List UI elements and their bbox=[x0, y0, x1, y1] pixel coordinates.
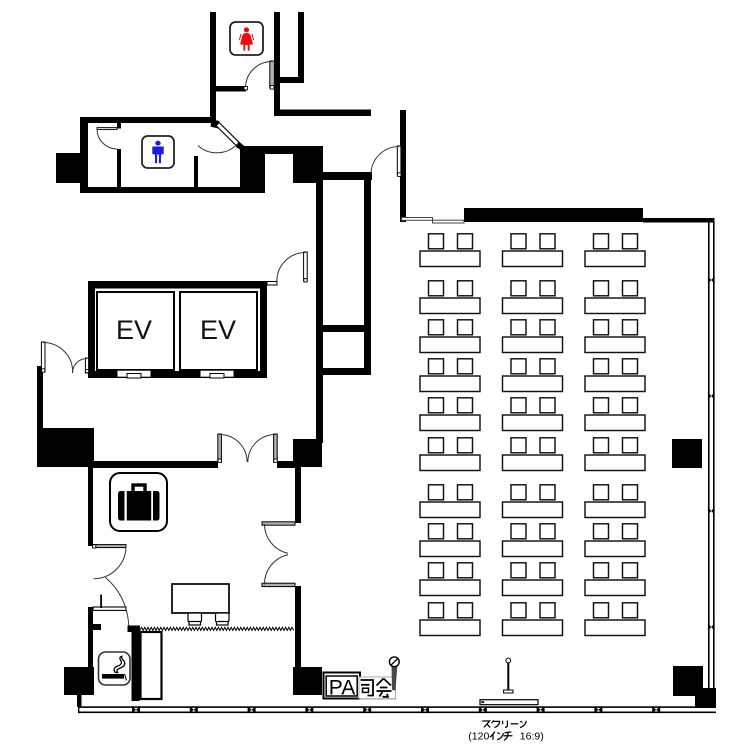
svg-text:PA: PA bbox=[329, 677, 355, 700]
svg-text:EV: EV bbox=[200, 315, 236, 345]
svg-text:16:9): 16:9) bbox=[520, 731, 544, 743]
svg-text:EV: EV bbox=[116, 315, 152, 345]
svg-text:(120: (120 bbox=[468, 731, 489, 743]
